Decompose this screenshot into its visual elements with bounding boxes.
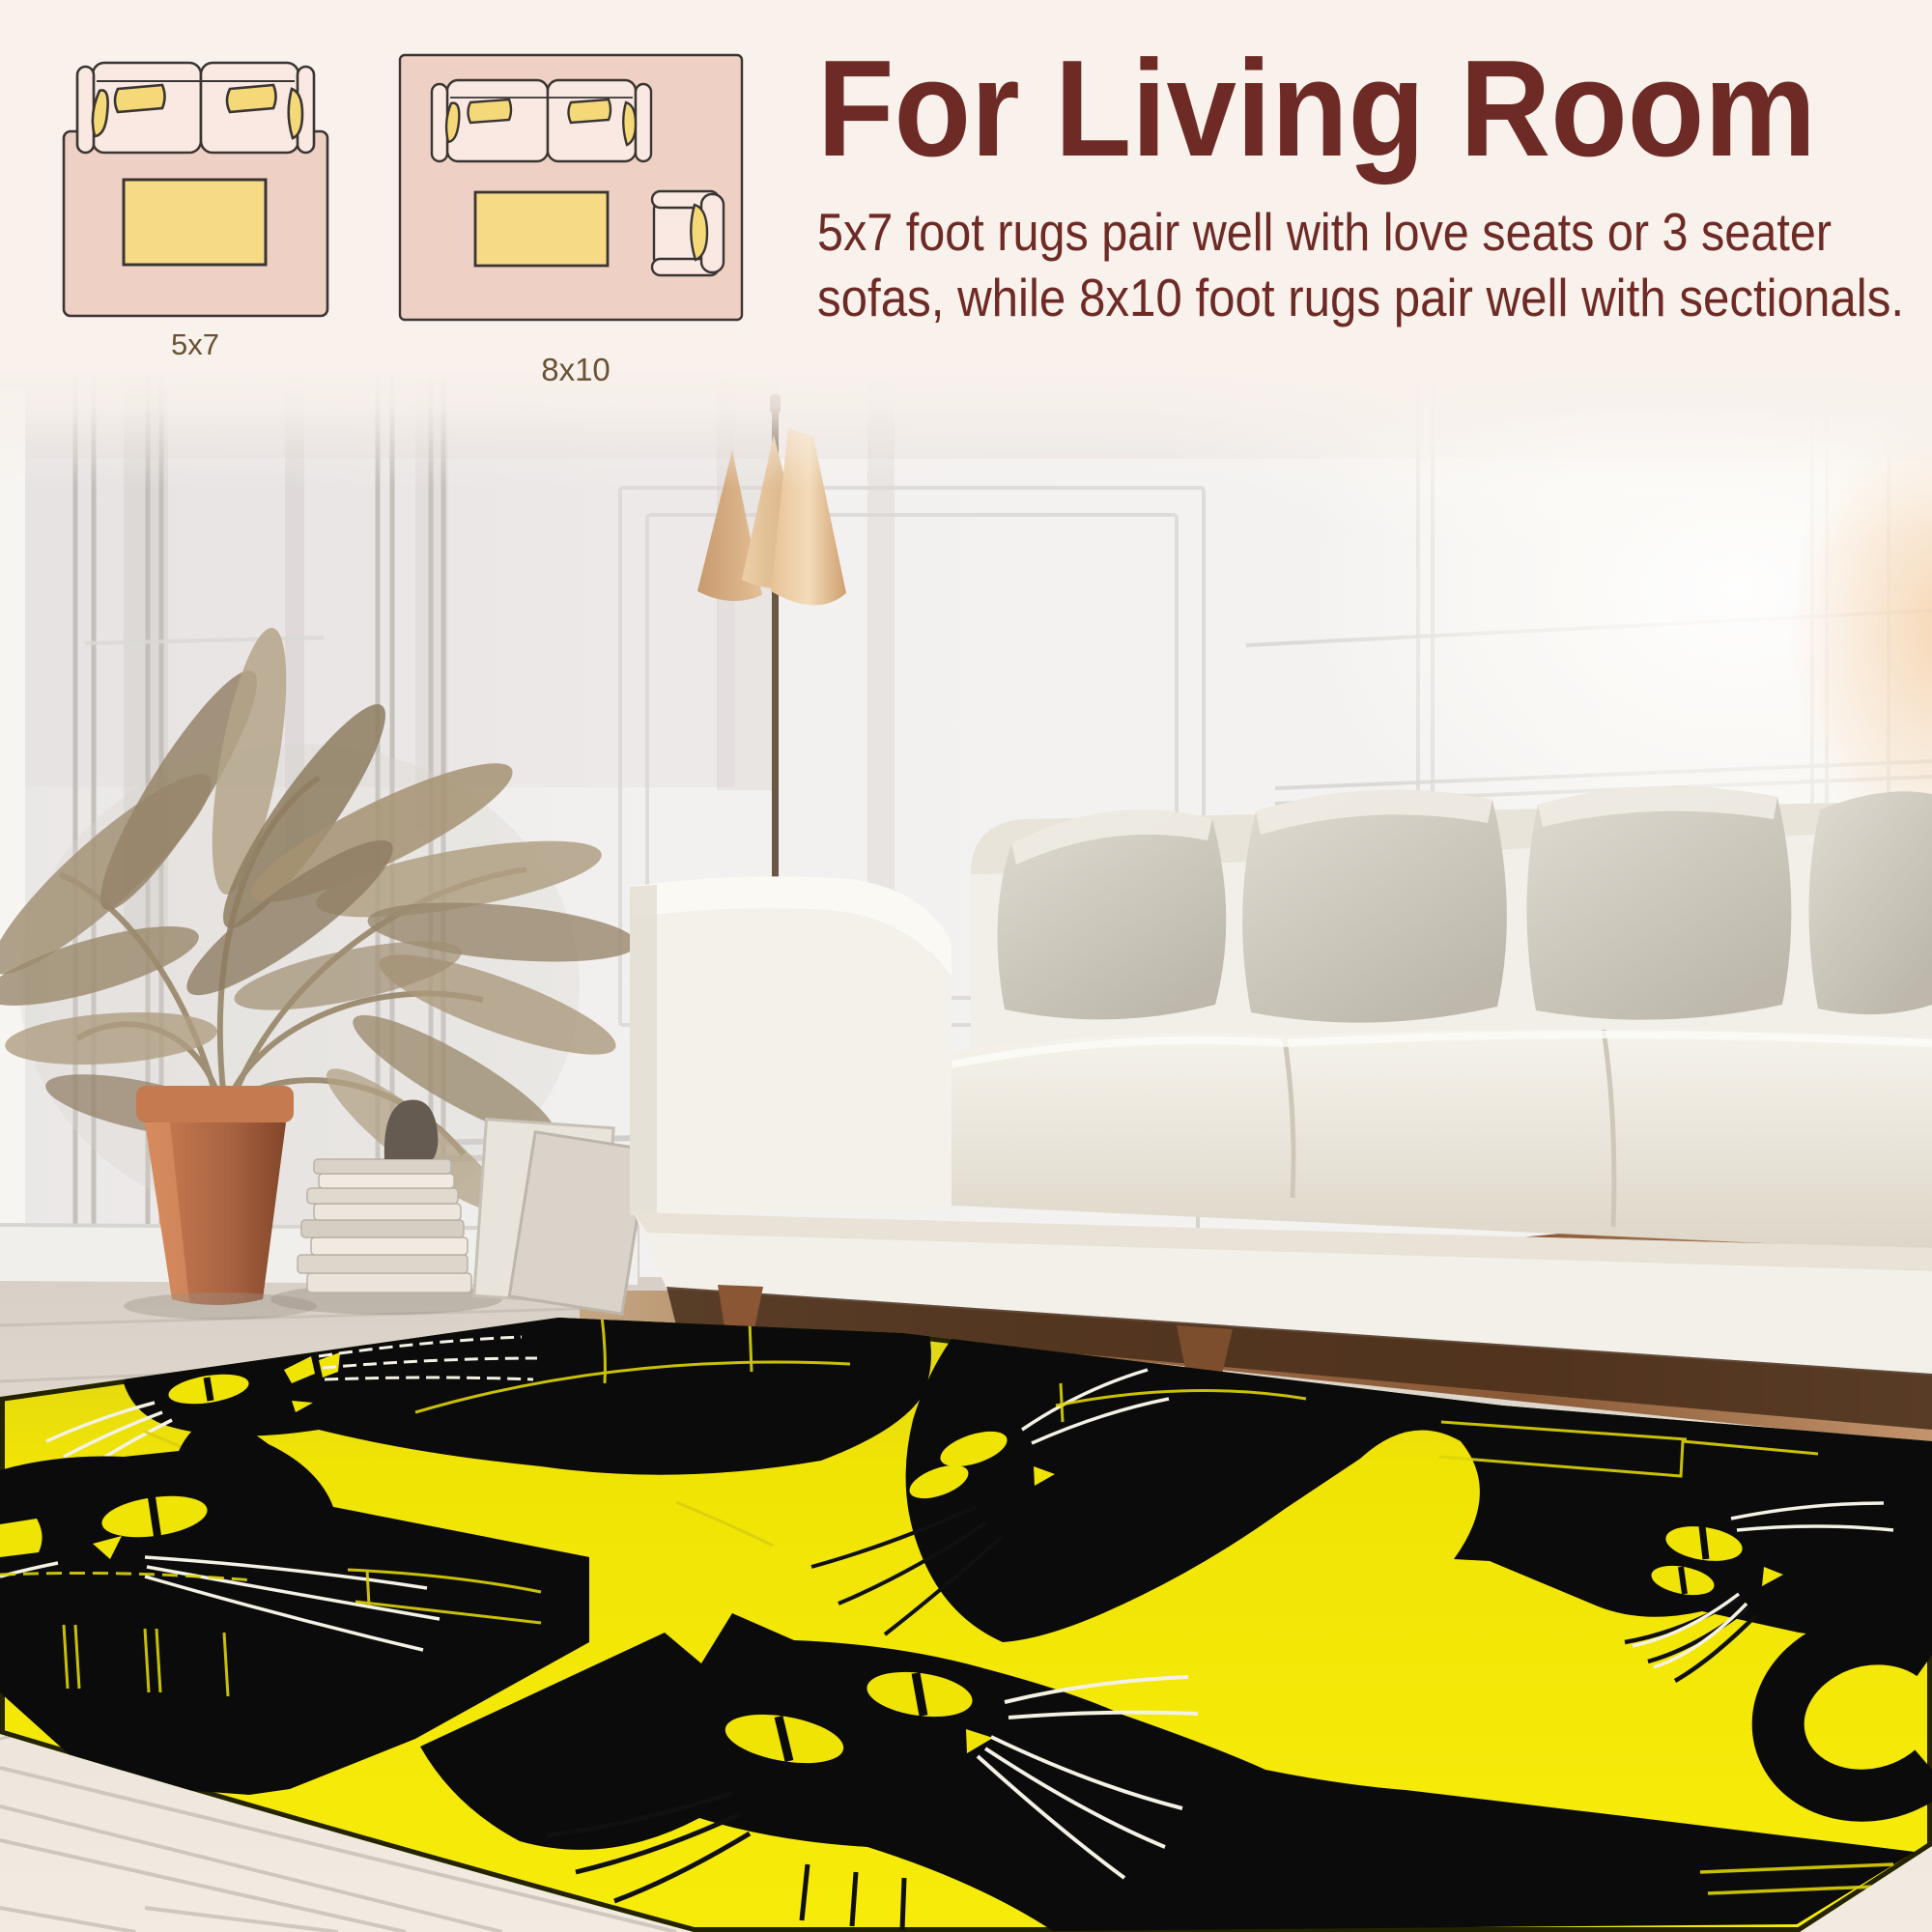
svg-text:For Living Room: For Living Room — [817, 32, 1816, 185]
svg-text:5x7 foot rugs pair well with l: 5x7 foot rugs pair well with love seats … — [817, 202, 1832, 262]
svg-text:sofas, while 8x10 foot rugs pa: sofas, while 8x10 foot rugs pair well wi… — [817, 268, 1904, 327]
svg-text:8x10: 8x10 — [541, 352, 611, 387]
svg-text:5x7: 5x7 — [171, 327, 219, 361]
